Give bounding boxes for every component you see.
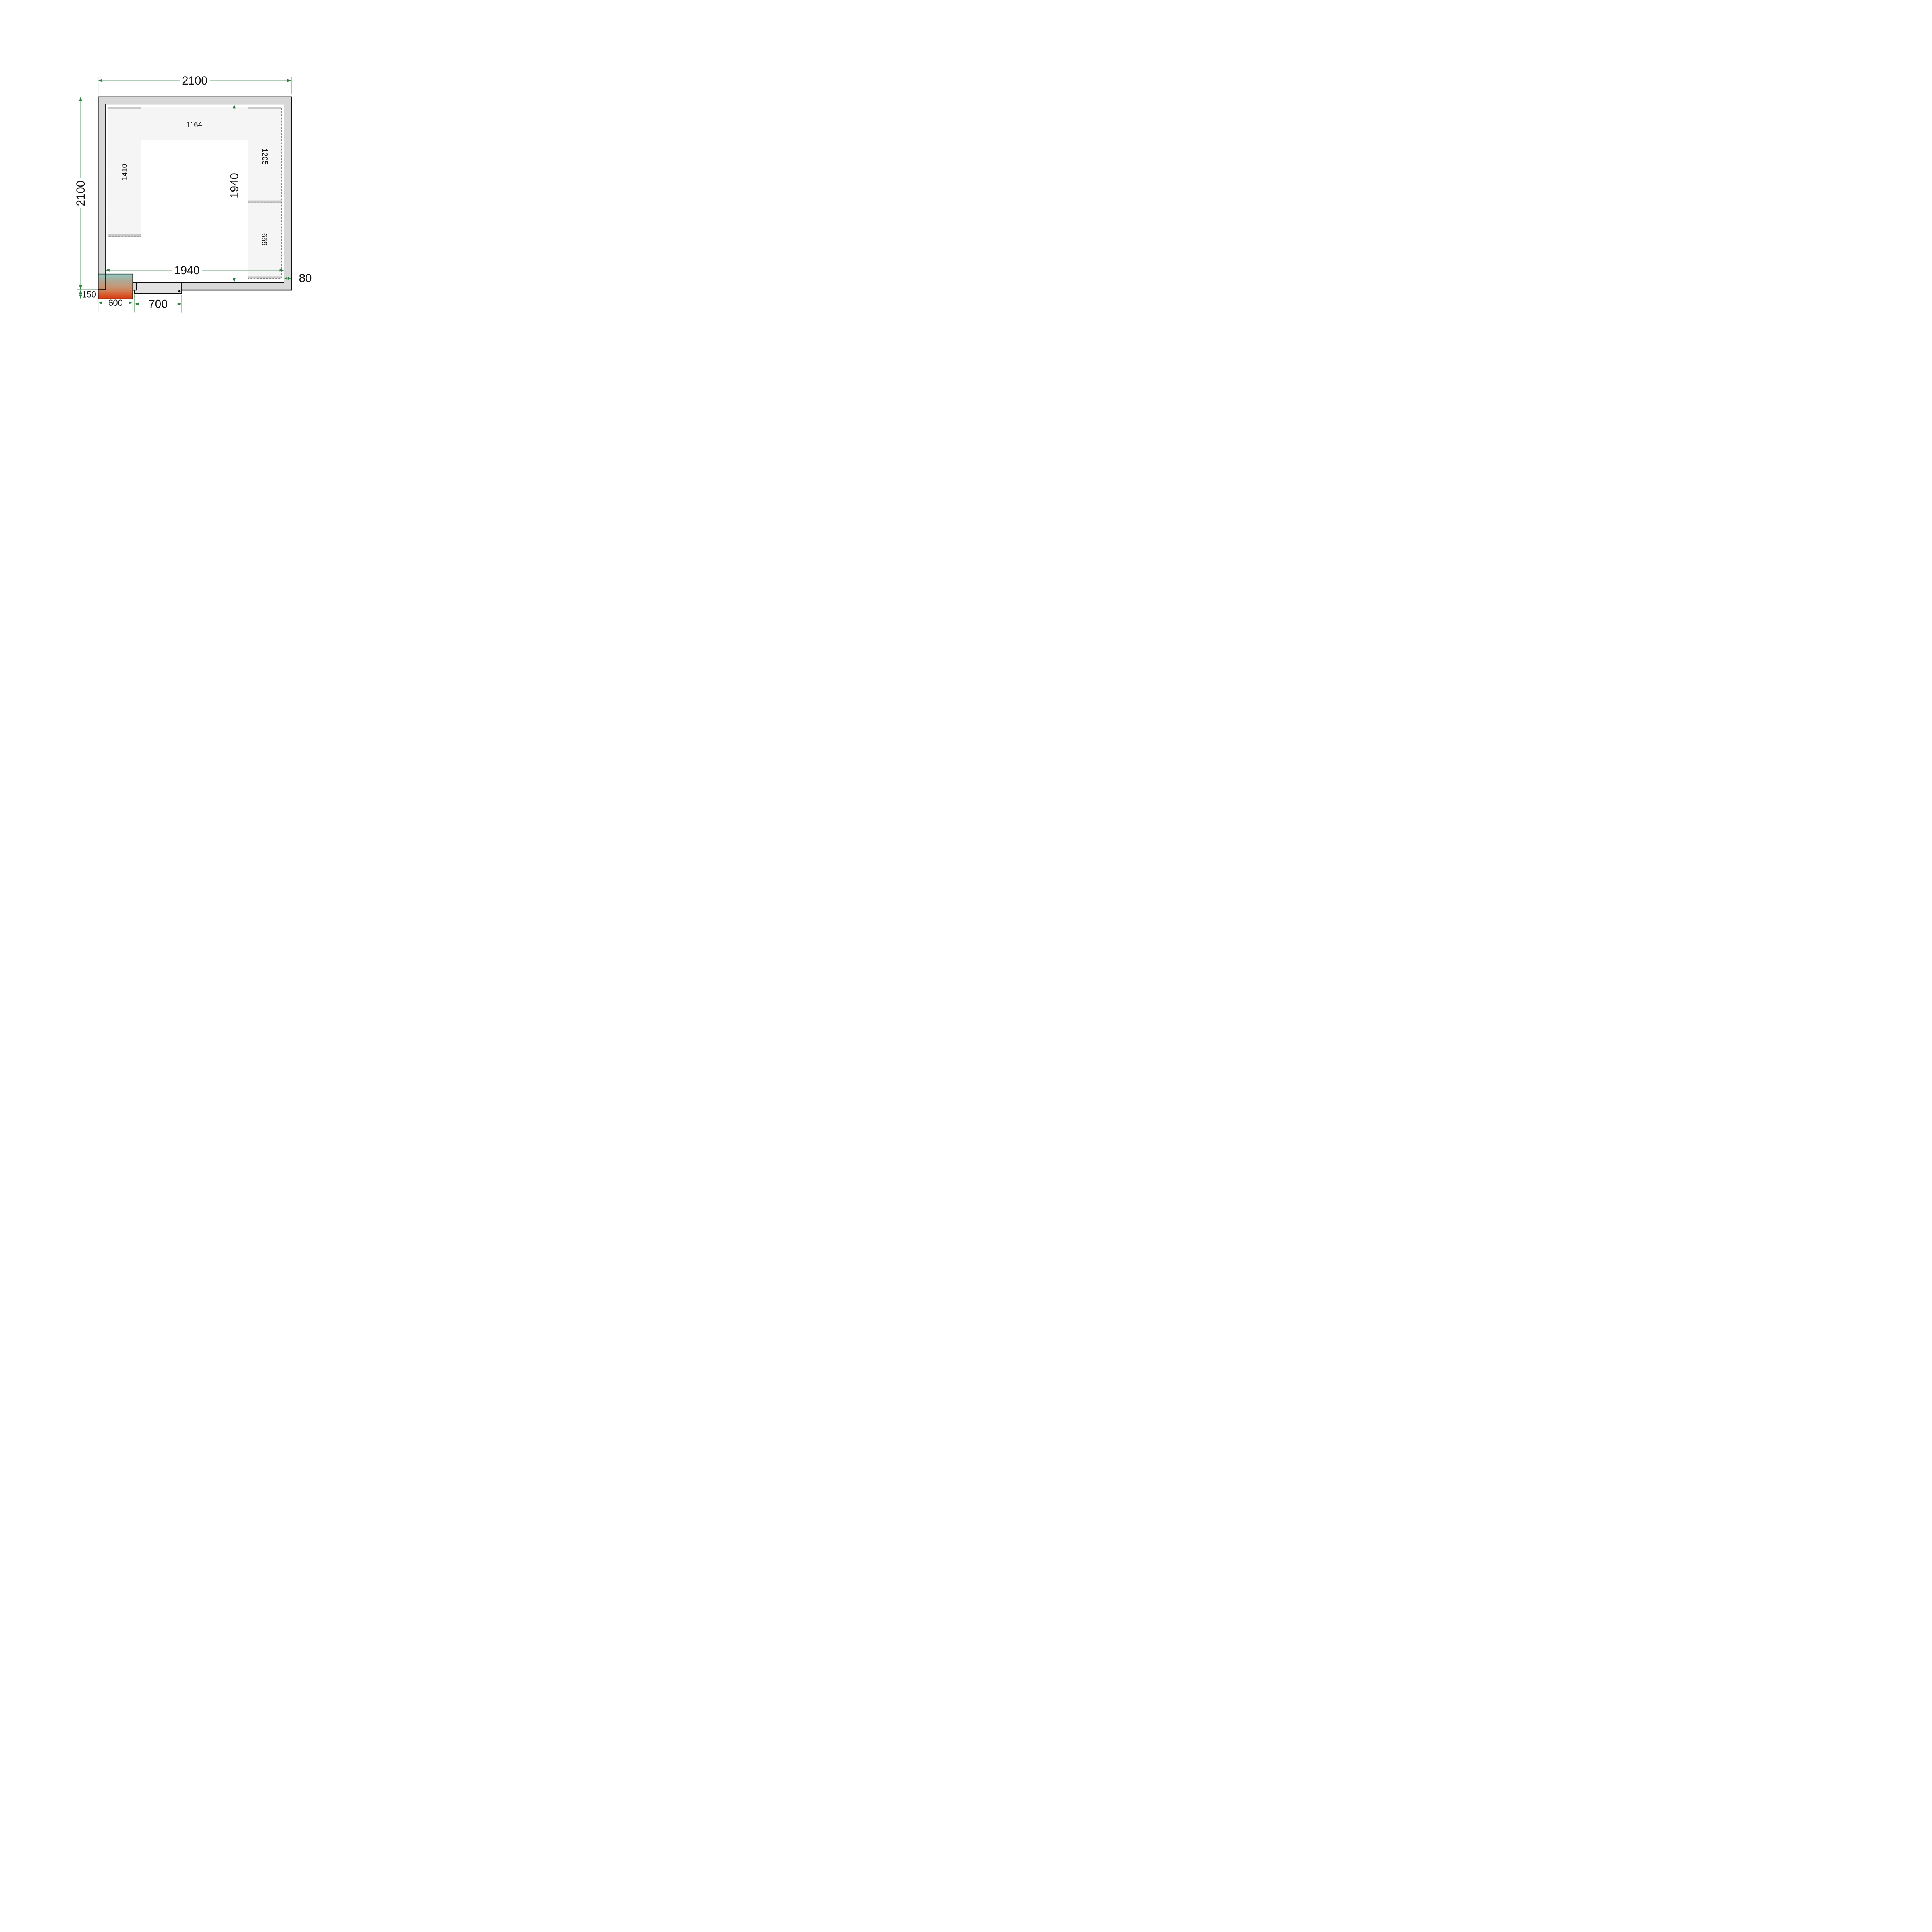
cooling-unit [98,274,133,299]
cold-room-floor-plan: 2100 2100 1940 1940 80 700 600 150 1164 … [0,0,386,386]
floor-plan-page: 2100 2100 1940 1940 80 700 600 150 1164 … [0,0,386,386]
inner-height-label: 1940 [228,173,241,199]
shelf-left-top-strip [108,107,141,109]
canvas-background [0,0,386,386]
shelf-top-label: 1164 [186,121,202,129]
shelf-left-label: 1410 [121,164,129,180]
shelf-right-divider-strip [248,201,281,203]
shelf-right-top-strip [248,107,281,109]
wall-thickness-label: 80 [299,272,312,285]
shelf-right-bottom-strip [248,276,281,278]
outer-width-label: 2100 [182,74,208,87]
shelf-left-bottom-strip [108,234,141,237]
door [133,282,182,293]
door-jamb-stub [133,283,136,290]
outer-height-label: 2100 [74,181,87,206]
cooling-unit-body [98,274,133,299]
door-width-label: 700 [148,298,167,310]
door-leaf [134,282,181,293]
shelf-right [248,107,281,279]
cooler-width-label: 600 [108,298,123,308]
cooler-protrusion-label: 150 [82,289,96,299]
shelf-right-upper-label: 1205 [261,148,269,165]
bottom-wall-right-segment [180,283,291,290]
door-hinge-dot [178,290,181,292]
inner-width-label: 1940 [174,264,200,277]
shelf-right-lower-label: 659 [260,233,268,246]
